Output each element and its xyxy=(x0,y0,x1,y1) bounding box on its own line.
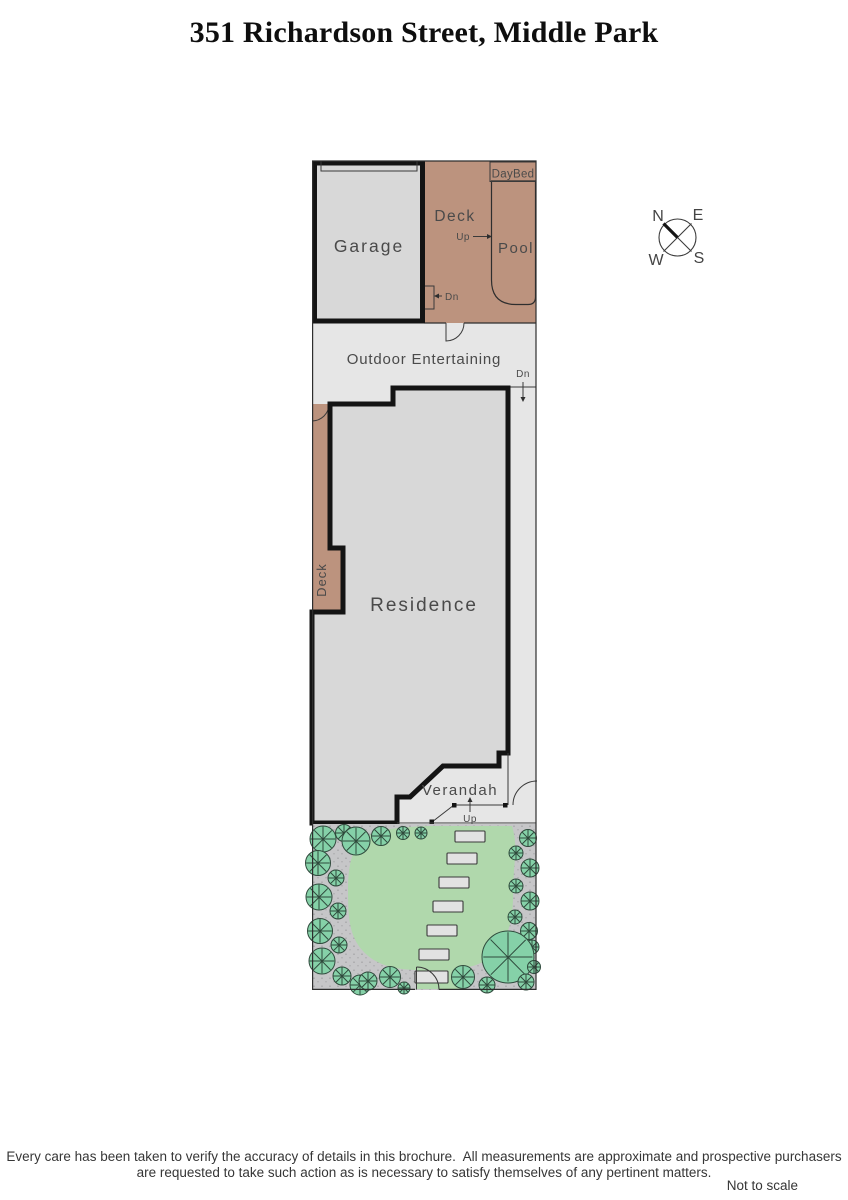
residence: Residence xyxy=(312,388,508,823)
compass-se-line xyxy=(678,238,692,252)
floor-plan: DayBed Dn Deck Pool Up Garage Outdoor En… xyxy=(0,0,848,1200)
garage-label: Garage xyxy=(334,236,404,256)
stepping-stone xyxy=(427,925,457,936)
compass-w-label: W xyxy=(648,252,664,269)
stepping-stone xyxy=(433,901,463,912)
outdoor-entertaining-label: Outdoor Entertaining xyxy=(347,351,501,368)
compass: N E W S xyxy=(648,207,704,269)
stepping-stone xyxy=(447,853,477,864)
disclaimer-line-1: Every care has been taken to verify the … xyxy=(0,1149,848,1164)
stepping-stone xyxy=(455,831,485,842)
verandah-post xyxy=(503,803,508,808)
garden xyxy=(306,823,541,995)
dn-path-label: Dn xyxy=(516,369,530,380)
stepping-stone xyxy=(439,877,469,888)
dn-deck-label: Dn xyxy=(445,292,459,303)
brochure-page: 351 Richardson Street, Middle Park DayBe… xyxy=(0,0,848,1200)
compass-s-label: S xyxy=(694,250,705,267)
verandah-post xyxy=(452,803,457,808)
pool-deck-area: DayBed Dn Deck Pool Up xyxy=(424,161,536,341)
deck-side-label: Deck xyxy=(314,563,329,597)
scale-note: Not to scale xyxy=(727,1178,798,1193)
disclaimer-line-2: are requested to take such action as is … xyxy=(0,1165,848,1180)
pool-label: Pool xyxy=(498,240,534,257)
verandah-label: Verandah xyxy=(422,782,498,799)
residence-label: Residence xyxy=(370,595,478,616)
up-pool-label: Up xyxy=(456,232,470,243)
compass-n-label: N xyxy=(652,208,664,225)
stepping-stone xyxy=(419,949,449,960)
daybed-label: DayBed xyxy=(492,169,535,181)
deck-top-label: Deck xyxy=(434,208,475,225)
compass-north-needle-icon xyxy=(664,224,678,238)
compass-e-label: E xyxy=(693,207,704,224)
garage: Garage xyxy=(315,161,423,321)
